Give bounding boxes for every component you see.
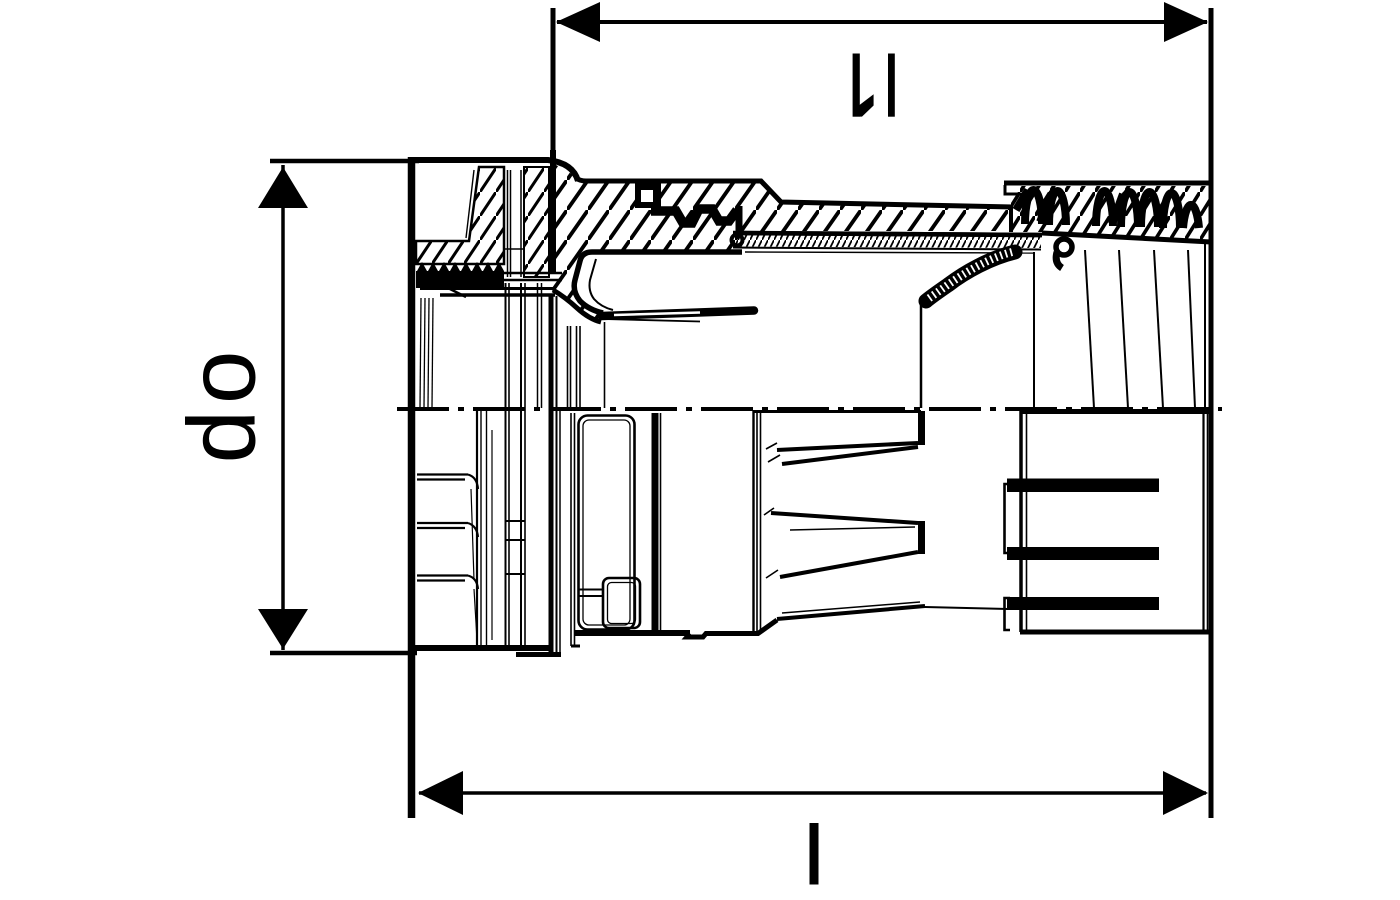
svg-text:do: do <box>169 345 276 464</box>
